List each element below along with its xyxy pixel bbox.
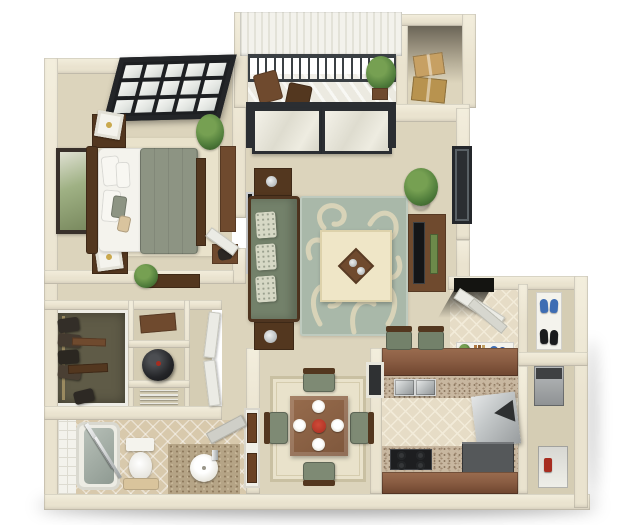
faucet: [212, 450, 218, 460]
shoe-blue: [540, 299, 549, 314]
fire-extinguisher: [544, 458, 552, 472]
bed-headboard: [86, 146, 98, 254]
tray-cup: [349, 259, 357, 267]
water-heater-unit: [538, 446, 568, 488]
bed-pillow: [115, 162, 130, 189]
dinner-plate: [312, 438, 325, 451]
bath-mat: [123, 478, 159, 490]
wall-closet-divider-right: [184, 300, 190, 420]
cubby-storage-box: [139, 312, 176, 333]
bathtub-interior: [84, 428, 114, 484]
closet-shelf: [72, 337, 106, 346]
breakfast-bar-counter: [382, 348, 518, 376]
wall-cubby-sep1: [128, 340, 190, 348]
wall-shoe-closet-left: [518, 284, 528, 358]
toilet-tank: [126, 438, 154, 451]
floor-plan-render: [0, 0, 639, 525]
balcony-plant: [366, 56, 396, 90]
dishwasher: [462, 442, 514, 474]
toilet-bowl: [129, 452, 152, 480]
dining-chair: [303, 462, 335, 482]
tv: [413, 222, 425, 284]
bathroom-door-closed: [244, 408, 260, 488]
chair-back: [368, 412, 374, 444]
hanging-clothes: [58, 349, 80, 364]
bed-footboard: [196, 158, 206, 246]
balcony-planter-pot: [372, 88, 388, 100]
wall-storage-right: [462, 14, 476, 108]
washer-dryer: [534, 366, 564, 406]
dinner-plate: [312, 400, 325, 413]
sliding-door-glass-panel: [252, 108, 322, 154]
bedroom-dresser: [220, 146, 236, 232]
chair-back: [303, 368, 335, 374]
wall-art-frame: [56, 148, 90, 234]
chair-back: [264, 412, 270, 444]
table-decor: [266, 176, 277, 187]
wall-right-exterior: [574, 276, 588, 508]
shower-tile-wall: [58, 420, 76, 494]
cooktop: [390, 449, 432, 470]
shoe-black: [550, 330, 559, 345]
wall-bathroom-top: [44, 406, 222, 420]
bar-stool: [418, 331, 444, 350]
hall-plant: [134, 264, 158, 288]
refrigerator: [471, 392, 521, 449]
sliding-door-jamb: [388, 102, 396, 148]
table-centerpiece: [312, 419, 326, 433]
cube-lamp: [94, 110, 124, 140]
living-plant: [404, 168, 438, 206]
kitchen-sink: [394, 379, 436, 396]
dining-chair: [350, 412, 370, 444]
storage-box: [413, 52, 446, 78]
sliding-door-jamb: [246, 102, 254, 148]
wire-rack: [140, 390, 178, 404]
living-window: [452, 146, 472, 224]
bedroom-plant: [196, 114, 224, 150]
sofa-cushions: [256, 212, 278, 308]
tray-cup: [357, 267, 365, 275]
wall-closet-divider-left: [128, 300, 134, 420]
table-decor: [264, 330, 277, 343]
dinner-plate: [331, 419, 344, 432]
bar-stool: [386, 331, 412, 350]
sliding-door-glass-panel: [322, 108, 392, 154]
wall-cubby-sep2: [128, 380, 190, 388]
bed-blanket: [140, 148, 198, 254]
shoe-black: [540, 329, 549, 344]
storage-box: [411, 76, 447, 103]
dinner-plate: [293, 419, 306, 432]
console-books: [430, 234, 438, 274]
kitchen-wall-frame: [366, 362, 384, 398]
shoe-blue: [550, 299, 559, 314]
chair-back: [303, 480, 335, 486]
wall-bottom-exterior: [44, 494, 590, 510]
bedroom-window: [103, 54, 237, 121]
dining-chair: [268, 412, 288, 444]
dining-chair: [303, 372, 335, 392]
balcony-roof: [240, 12, 402, 56]
wall-shoe-utility-sep: [518, 352, 588, 366]
kitchen-counter-lower: [382, 472, 518, 494]
hanging-clothes: [57, 317, 80, 334]
heater-valve: [156, 361, 161, 366]
